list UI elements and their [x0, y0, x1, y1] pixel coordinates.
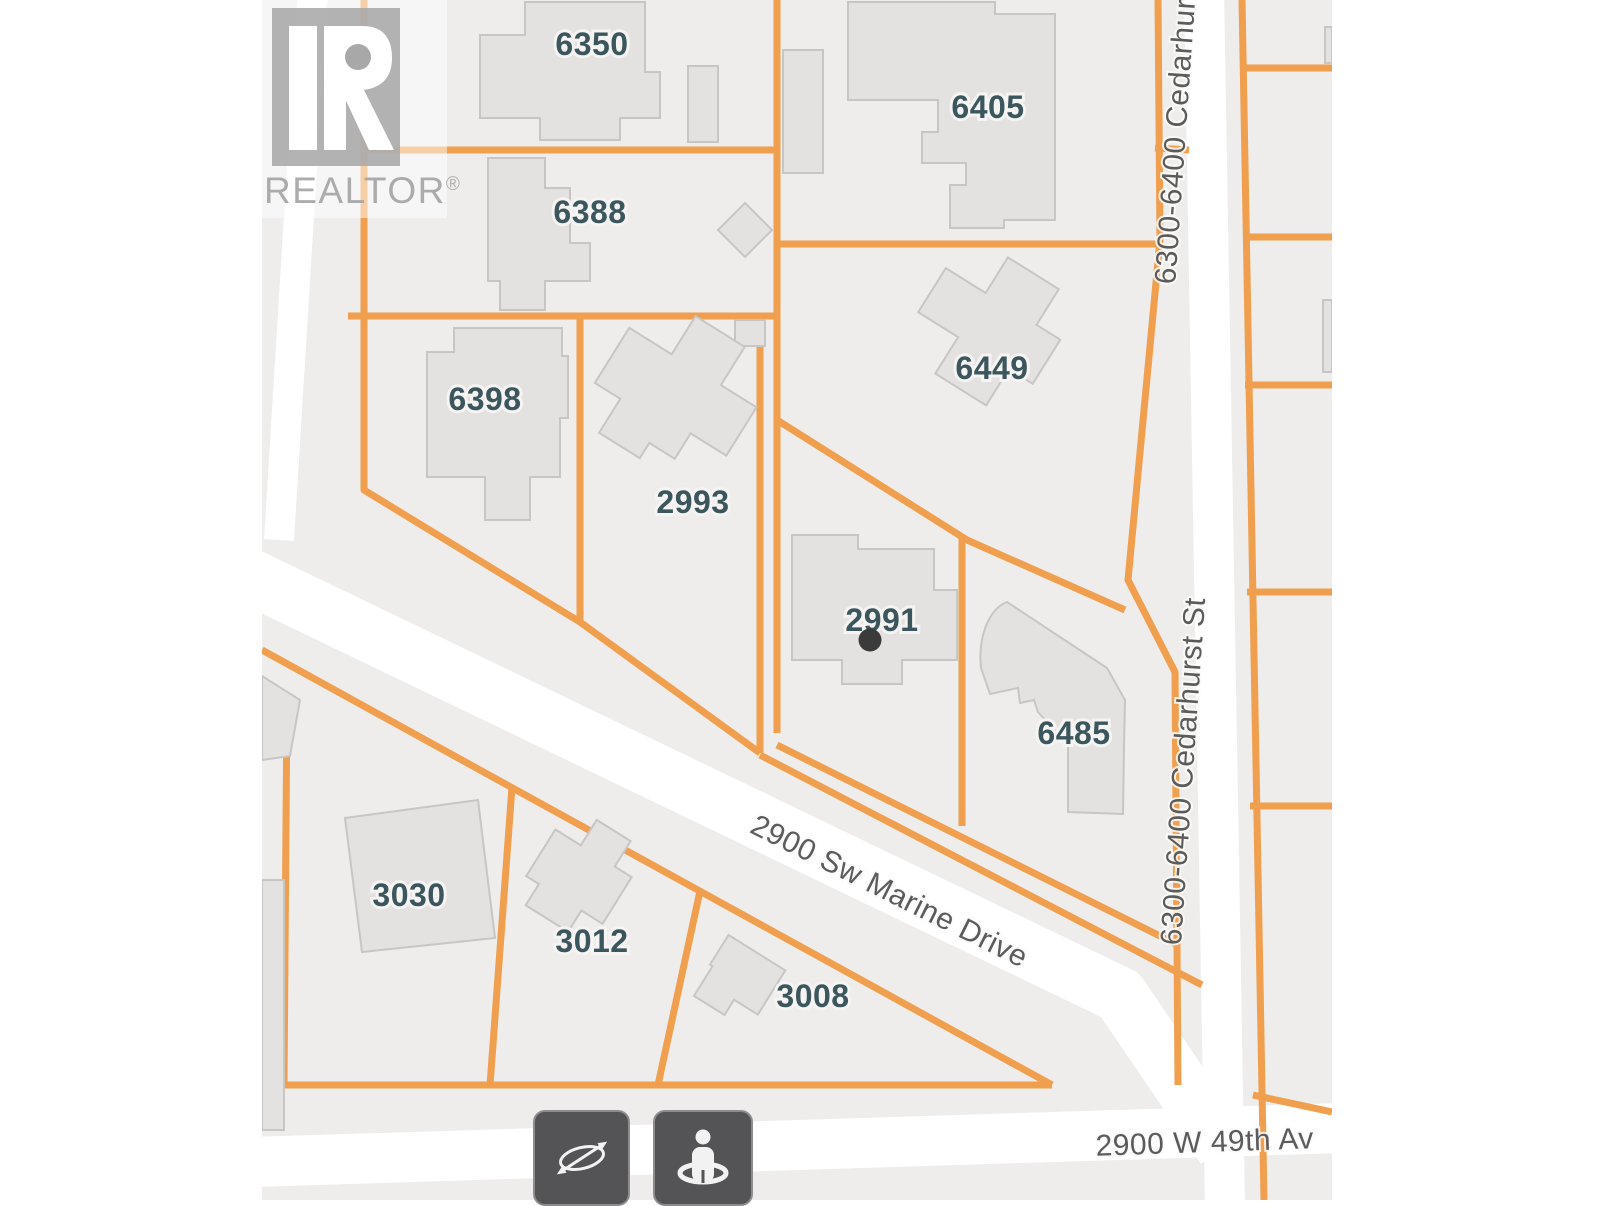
pegman-button[interactable] — [653, 1110, 753, 1206]
watermark-wordmark: REALTOR® — [264, 170, 461, 211]
lot-label: 2991 — [845, 602, 918, 638]
subject-property-marker — [859, 629, 882, 652]
lot-label: 6350 — [555, 26, 628, 62]
page-background: 6350 6388 6398 2993 6405 6449 2991 6485 … — [0, 0, 1600, 1200]
registered-trademark-symbol: ® — [446, 174, 462, 195]
parcel-map[interactable]: 6350 6388 6398 2993 6405 6449 2991 6485 … — [262, 0, 1332, 1200]
realtor-watermark: REALTOR® — [262, 0, 461, 218]
compass-icon — [553, 1132, 611, 1184]
lot-label: 6398 — [448, 381, 521, 417]
lot-label: 6405 — [951, 89, 1024, 125]
lot-label: 2993 — [656, 484, 729, 520]
lot-label: 6449 — [955, 350, 1028, 386]
realtor-logo-icon — [272, 8, 400, 166]
lot-label: 6388 — [553, 194, 626, 230]
lot-label: 6485 — [1037, 715, 1110, 751]
compass-button[interactable] — [533, 1110, 630, 1206]
lot-label: 3008 — [776, 978, 849, 1014]
lot-label: 3012 — [555, 923, 628, 959]
lot-label: 3030 — [372, 877, 445, 913]
pegman-icon — [673, 1126, 733, 1190]
watermark-brand-text: REALTOR — [264, 170, 446, 211]
